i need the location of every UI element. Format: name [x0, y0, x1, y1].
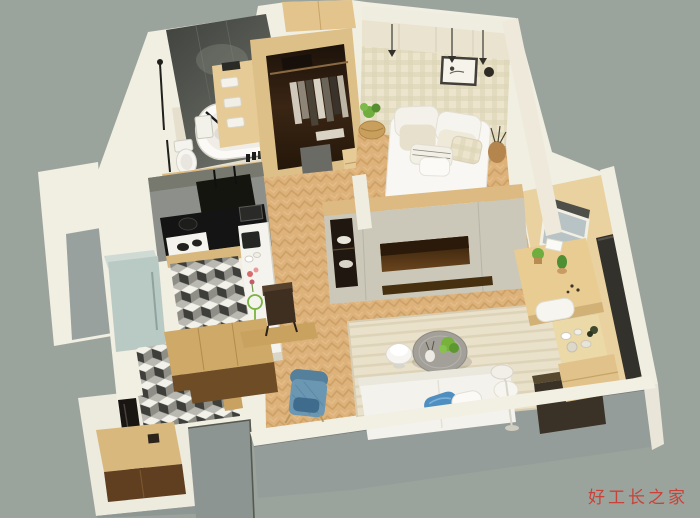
floorplan-render: 好工长之家 [0, 0, 700, 518]
frying-pan [179, 218, 197, 230]
wall-decal [484, 67, 494, 77]
wall-art-frame [441, 57, 476, 85]
built-in-oven [239, 205, 263, 222]
apartment-scene: 好工长之家 [0, 0, 700, 518]
watermark-text: 好工长之家 [588, 488, 688, 508]
tv-wall [322, 184, 530, 304]
towel-shelf [212, 60, 260, 148]
bath-cabinet [195, 115, 214, 139]
coffee-machine [241, 231, 261, 249]
shoe-cabinet [96, 422, 186, 502]
entry-door-recess [188, 420, 254, 518]
